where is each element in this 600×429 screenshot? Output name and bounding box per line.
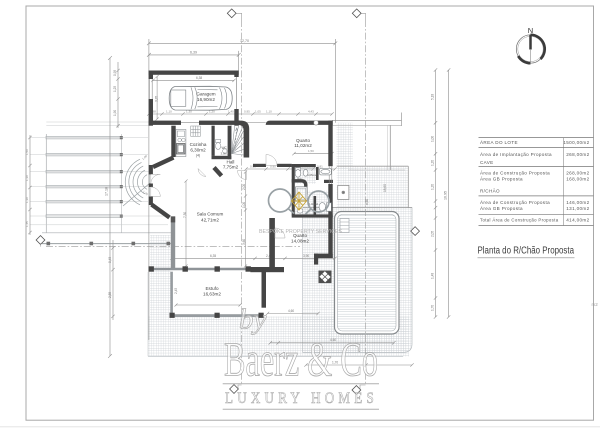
svg-text:0,95: 0,95 <box>113 70 117 76</box>
svg-text:131,00m2: 131,00m2 <box>566 206 589 211</box>
svg-text:1,48: 1,48 <box>431 273 435 279</box>
svg-text:1,00: 1,00 <box>431 136 435 142</box>
svg-text:1,20: 1,20 <box>431 160 435 166</box>
svg-text:N: N <box>528 26 533 35</box>
svg-text:1,45: 1,45 <box>25 221 29 227</box>
svg-text:1,00: 1,00 <box>242 202 246 208</box>
svg-text:ÁREA DO LOTE: ÁREA DO LOTE <box>480 139 518 145</box>
svg-text:R/CHÃO: R/CHÃO <box>480 187 500 193</box>
svg-text:1,30: 1,30 <box>25 197 29 203</box>
svg-text:42,71m2: 42,71m2 <box>201 218 219 223</box>
svg-text:(4): (4) <box>196 154 200 158</box>
svg-text:2,85: 2,85 <box>108 292 112 298</box>
svg-text:8,60: 8,60 <box>365 199 369 205</box>
svg-text:CAVE: CAVE <box>480 160 494 165</box>
svg-text:3,60: 3,60 <box>242 239 246 245</box>
svg-text:Área de Implantação Propost: Área de Implantação Proposta <box>480 151 552 157</box>
svg-text:0,95: 0,95 <box>244 110 250 114</box>
svg-text:4,60: 4,60 <box>288 309 294 313</box>
svg-text:Área de Construção Proposta: Área de Construção Proposta <box>480 199 550 205</box>
svg-text:1,50: 1,50 <box>25 149 29 155</box>
svg-text:1,20: 1,20 <box>431 184 435 190</box>
svg-text:Área de Construção Proposta: Área de Construção Proposta <box>480 170 550 176</box>
svg-text:Total Área de Construção P: Total Área de Construção Proposta <box>480 218 559 223</box>
svg-text:17,18: 17,18 <box>105 187 109 196</box>
svg-text:Garagem: Garagem <box>196 92 215 97</box>
svg-text:4,65m2: 4,65m2 <box>307 173 317 177</box>
svg-text:1,40: 1,40 <box>228 110 234 114</box>
svg-text:16,63m2: 16,63m2 <box>203 291 221 296</box>
svg-text:1,05: 1,05 <box>255 110 261 114</box>
svg-text:2,05: 2,05 <box>431 231 435 237</box>
svg-text:3,35: 3,35 <box>155 96 159 102</box>
svg-text:1,10: 1,10 <box>266 110 272 114</box>
svg-text:5,18: 5,18 <box>431 94 435 100</box>
svg-text:Estufo: Estufo <box>205 286 218 291</box>
svg-text:2,00: 2,00 <box>242 184 246 190</box>
svg-text:268,00m2: 268,00m2 <box>566 171 589 176</box>
svg-text:2,40m2: 2,40m2 <box>309 202 319 206</box>
svg-text:146,00m2: 146,00m2 <box>566 200 589 205</box>
svg-text:7,30: 7,30 <box>183 212 187 218</box>
svg-text:3,90: 3,90 <box>303 254 309 258</box>
svg-text:Baerz & Co: Baerz & Co <box>224 332 378 387</box>
svg-text:0,45: 0,45 <box>108 257 112 263</box>
svg-text:1,50: 1,50 <box>308 149 314 153</box>
svg-text:6,38: 6,38 <box>196 76 202 80</box>
svg-text:Área GB Proposta: Área GB Proposta <box>480 176 523 182</box>
svg-text:6,35: 6,35 <box>210 254 216 258</box>
svg-text:Planta do R/Chão Proposta: Planta do R/Chão Proposta <box>478 246 575 257</box>
svg-text:12,70: 12,70 <box>240 39 249 43</box>
svg-text:Área GB Proposta: Área GB Proposta <box>480 205 523 211</box>
svg-text:WC: WC <box>222 146 228 150</box>
svg-text:4,43: 4,43 <box>308 110 314 114</box>
svg-text:1,10: 1,10 <box>166 110 172 114</box>
svg-text:18,60: 18,60 <box>383 184 387 192</box>
svg-text:2,45: 2,45 <box>174 288 178 294</box>
svg-text:3,8m2: 3,8m2 <box>221 151 230 155</box>
svg-text:1500,00m2: 1500,00m2 <box>563 140 589 145</box>
svg-text:1,90: 1,90 <box>113 110 117 116</box>
svg-text:Cozinha: Cozinha <box>190 142 207 147</box>
svg-text:1,70: 1,70 <box>431 305 435 311</box>
svg-text:LUXURY HOMES: LUXURY HOMES <box>225 390 378 407</box>
svg-text:m2: m2 <box>592 302 599 307</box>
svg-text:Sala Comum: Sala Comum <box>197 212 224 217</box>
svg-text:16,95: 16,95 <box>443 191 447 200</box>
svg-text:11,02m2: 11,02m2 <box>294 143 312 148</box>
svg-text:16,90m2: 16,90m2 <box>197 97 215 102</box>
svg-text:1,30: 1,30 <box>25 175 29 181</box>
svg-text:268,00m2: 268,00m2 <box>566 152 589 157</box>
svg-text:7,75m2: 7,75m2 <box>223 165 239 170</box>
svg-text:BESPOKE PROPERTY SERVICES: BESPOKE PROPERTY SERVICES <box>259 229 342 235</box>
svg-text:1,25: 1,25 <box>113 86 117 92</box>
svg-text:414,00m2: 414,00m2 <box>566 218 589 223</box>
svg-text:0,90: 0,90 <box>270 165 276 169</box>
svg-text:WC: WC <box>297 177 303 181</box>
svg-text:168,00m2: 168,00m2 <box>566 177 589 182</box>
svg-text:14,08m2: 14,08m2 <box>291 239 309 244</box>
svg-text:6,30m2: 6,30m2 <box>190 148 206 153</box>
svg-text:6,39: 6,39 <box>190 50 197 54</box>
